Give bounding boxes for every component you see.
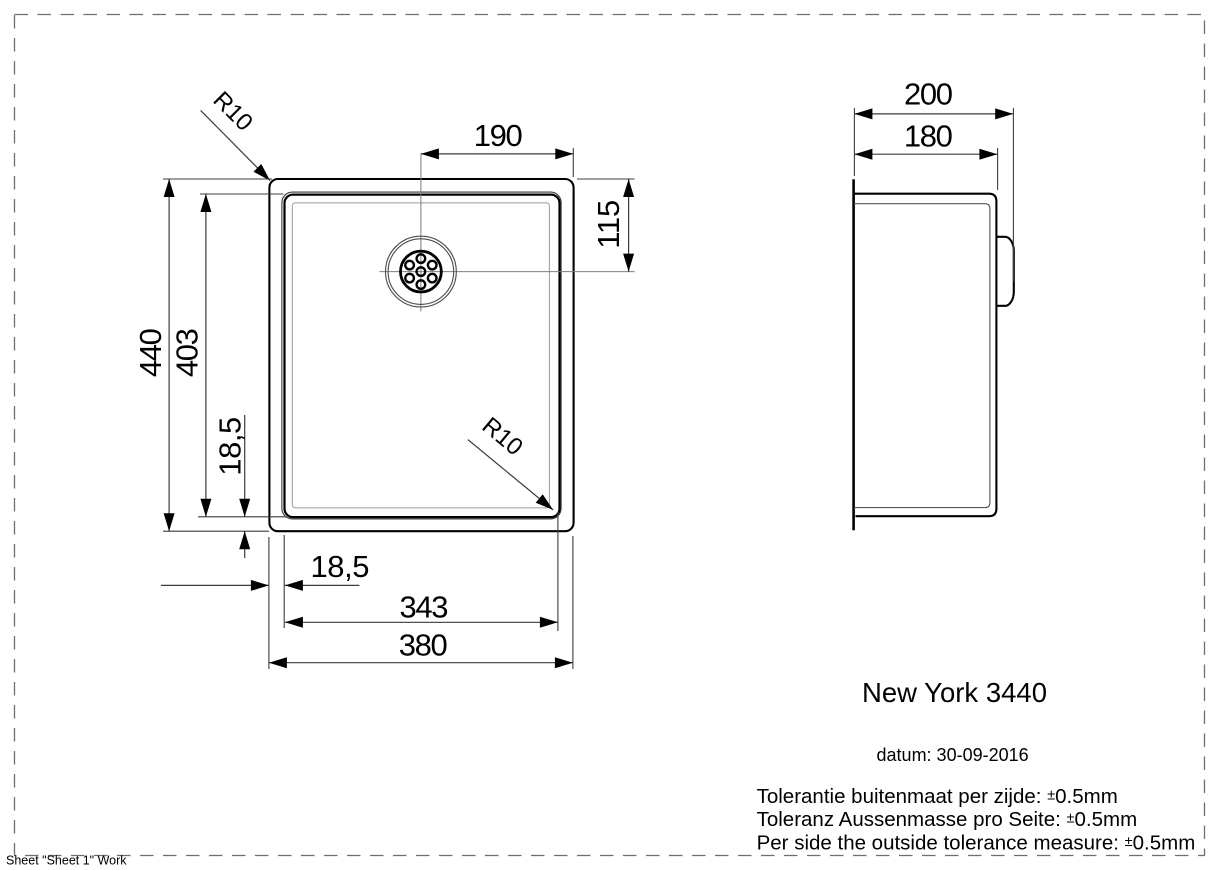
svg-text:Sheet "Sheet 1" Work: Sheet "Sheet 1" Work [6, 854, 127, 868]
svg-text:New York 3440: New York 3440 [862, 677, 1047, 708]
svg-text:403: 403 [170, 328, 205, 377]
svg-text:18,5: 18,5 [311, 549, 370, 584]
svg-text:180: 180 [904, 119, 953, 154]
svg-text:440: 440 [133, 328, 168, 377]
svg-text:343: 343 [400, 590, 449, 625]
svg-text:18,5: 18,5 [213, 417, 248, 476]
svg-text:datum: 30-09-2016: datum: 30-09-2016 [877, 745, 1029, 765]
svg-text:Toleranz Aussenmasse pro Seite: Toleranz Aussenmasse pro Seite: ±0.5mm [757, 808, 1138, 831]
svg-text:190: 190 [474, 118, 523, 153]
svg-text:380: 380 [399, 628, 448, 663]
svg-text:Tolerantie buitenmaat per zijd: Tolerantie buitenmaat per zijde: ±0.5mm [757, 785, 1118, 808]
svg-text:115: 115 [591, 200, 626, 249]
svg-text:200: 200 [904, 77, 953, 112]
